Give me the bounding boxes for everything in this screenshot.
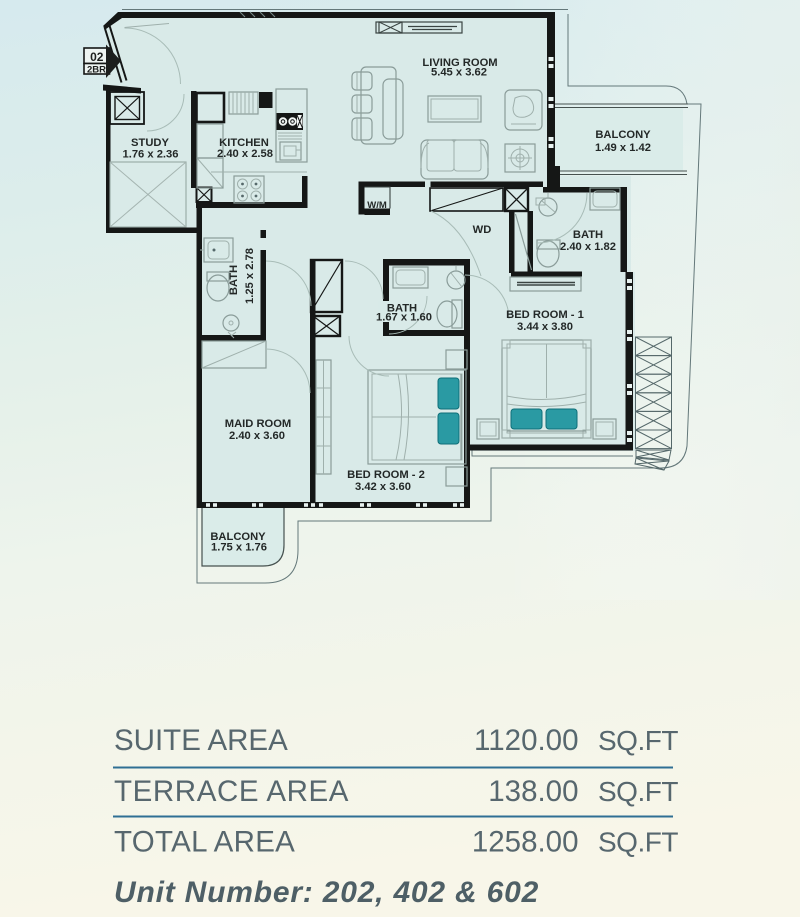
svg-text:02: 02 [90,50,104,64]
svg-text:2.40 x 2.58: 2.40 x 2.58 [217,148,273,160]
svg-text:Unit Number: 202, 402 & 602: Unit Number: 202, 402 & 602 [114,876,539,909]
svg-text:SQ.FT: SQ.FT [598,725,678,756]
svg-text:5.45 x 3.62: 5.45 x 3.62 [431,67,487,79]
svg-text:1258.00: 1258.00 [472,826,579,859]
svg-text:1.75 x 1.76: 1.75 x 1.76 [211,542,267,554]
svg-text:SQ.FT: SQ.FT [598,776,678,807]
svg-text:1.25 x 2.78: 1.25 x 2.78 [244,248,256,304]
svg-text:BATH: BATH [228,265,240,295]
svg-text:138.00: 138.00 [488,775,578,808]
svg-text:WD: WD [473,224,492,236]
svg-text:BED ROOM - 1: BED ROOM - 1 [506,309,584,321]
svg-text:1.76 x 2.36: 1.76 x 2.36 [123,149,179,161]
svg-text:STUDY: STUDY [131,137,169,149]
svg-text:BATH: BATH [573,229,603,241]
svg-text:1.49 x 1.42: 1.49 x 1.42 [595,142,651,154]
svg-text:1120.00: 1120.00 [474,724,578,757]
svg-text:1.67 x 1.60: 1.67 x 1.60 [376,312,432,324]
svg-text:TOTAL AREA: TOTAL AREA [114,826,295,859]
svg-text:SQ.FT: SQ.FT [598,827,678,858]
svg-text:3.44 x 3.80: 3.44 x 3.80 [517,321,573,333]
svg-text:BED ROOM - 2: BED ROOM - 2 [347,469,425,481]
svg-text:W/M: W/M [367,200,387,211]
svg-text:2.40 x 1.82: 2.40 x 1.82 [560,241,616,253]
svg-text:TERRACE AREA: TERRACE AREA [114,775,349,808]
svg-text:MAID ROOM: MAID ROOM [225,418,292,430]
svg-text:SUITE AREA: SUITE AREA [114,724,288,757]
svg-text:3.42 x 3.60: 3.42 x 3.60 [355,481,411,493]
svg-text:BALCONY: BALCONY [595,129,651,141]
svg-text:2BR: 2BR [87,64,106,75]
svg-text:2.40 x 3.60: 2.40 x 3.60 [229,430,285,442]
